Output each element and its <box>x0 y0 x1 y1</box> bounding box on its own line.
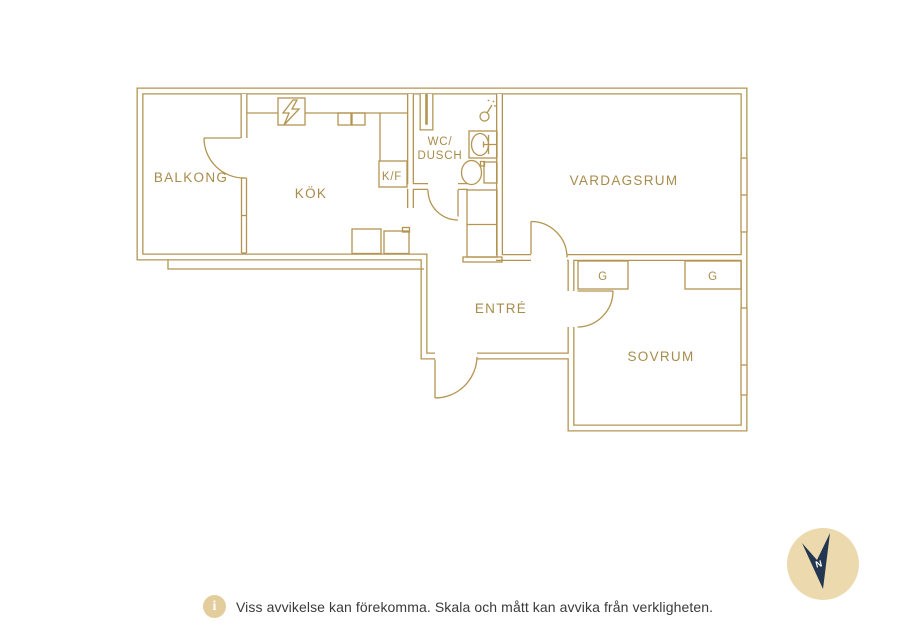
bathroom-door <box>428 190 458 220</box>
floorplan-drawing: BALKONG KÖK K/F WC/ DUSCH VARDAGSRUM ENT… <box>0 0 900 636</box>
floorplan-page: BALKONG KÖK K/F WC/ DUSCH VARDAGSRUM ENT… <box>0 0 900 636</box>
shower-icon <box>480 100 496 121</box>
label-kf: K/F <box>382 171 402 183</box>
label-wc-line2: DUSCH <box>418 150 463 162</box>
hall-closet-box <box>467 190 497 257</box>
hob-right <box>352 113 365 125</box>
label-kok: KÖK <box>295 186 327 201</box>
disclaimer-bar: i Viss avvikelse kan förekomma. Skala oc… <box>203 595 713 618</box>
livingroom-window <box>741 158 747 232</box>
balcony-window <box>242 178 247 253</box>
toilet-icon <box>462 161 498 185</box>
livingroom-door <box>531 222 567 258</box>
room-labels: BALKONG KÖK K/F WC/ DUSCH VARDAGSRUM ENT… <box>154 136 718 364</box>
compass-icon: N <box>787 528 859 600</box>
slab-edge <box>168 261 424 270</box>
kitchen-cabinet-right <box>384 231 409 254</box>
label-wc-line1: WC/ <box>428 136 453 148</box>
bathroom-fixtures <box>462 100 498 185</box>
kitchen-cabinet-left <box>352 229 381 254</box>
bedroom-door <box>578 291 614 327</box>
label-garderob-2: G <box>708 271 718 283</box>
label-vardagsrum: VARDAGSRUM <box>570 173 679 188</box>
label-entre: ENTRÉ <box>475 301 527 316</box>
label-garderob-1: G <box>598 271 608 283</box>
kitchen-counter <box>247 113 407 161</box>
bedroom-window <box>741 308 747 395</box>
sink-icon <box>469 131 497 158</box>
disclaimer-text: Viss avvikelse kan förekomma. Skala och … <box>236 599 713 615</box>
entrance-door <box>435 357 477 398</box>
hob-left <box>338 113 351 125</box>
label-balkong: BALKONG <box>154 170 228 185</box>
label-sovrum: SOVRUM <box>627 349 694 364</box>
info-icon: i <box>203 595 226 618</box>
